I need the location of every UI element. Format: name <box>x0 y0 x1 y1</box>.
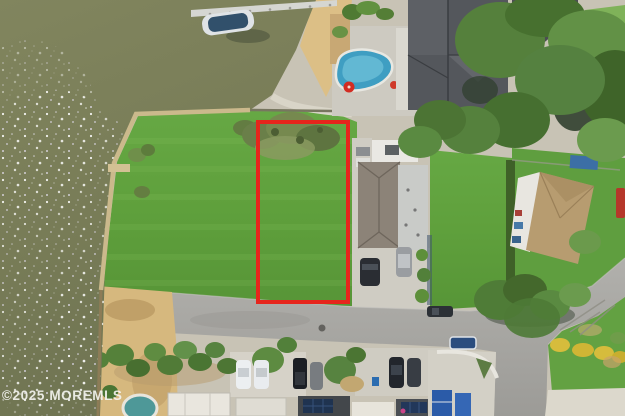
red-truck <box>616 188 625 218</box>
aerial-photo-canvas <box>0 0 625 416</box>
small-pool <box>123 395 157 416</box>
pink-object <box>401 409 406 414</box>
blue-roof <box>432 390 452 416</box>
car-on-street <box>427 306 453 317</box>
parked-car <box>356 147 370 156</box>
rooftop-unit <box>385 145 399 155</box>
dark-car <box>407 358 421 387</box>
house-roof <box>236 398 286 416</box>
blue-bin <box>372 377 379 386</box>
aerial-photo: ©2025 MOREMLS <box>0 0 625 416</box>
seawall-edge <box>250 110 332 111</box>
blue-roof <box>455 393 471 416</box>
house-roof <box>352 402 394 416</box>
house-roof <box>168 393 230 416</box>
yellow-bush <box>550 338 570 352</box>
gray-car <box>310 362 323 390</box>
yellow-bush <box>572 343 594 357</box>
manhole-cover <box>319 325 326 332</box>
blue-car <box>450 337 476 349</box>
car-dark <box>360 258 380 286</box>
roof-light-section <box>398 165 428 250</box>
corner-sidewalk <box>545 388 625 416</box>
dock-return <box>108 164 130 172</box>
